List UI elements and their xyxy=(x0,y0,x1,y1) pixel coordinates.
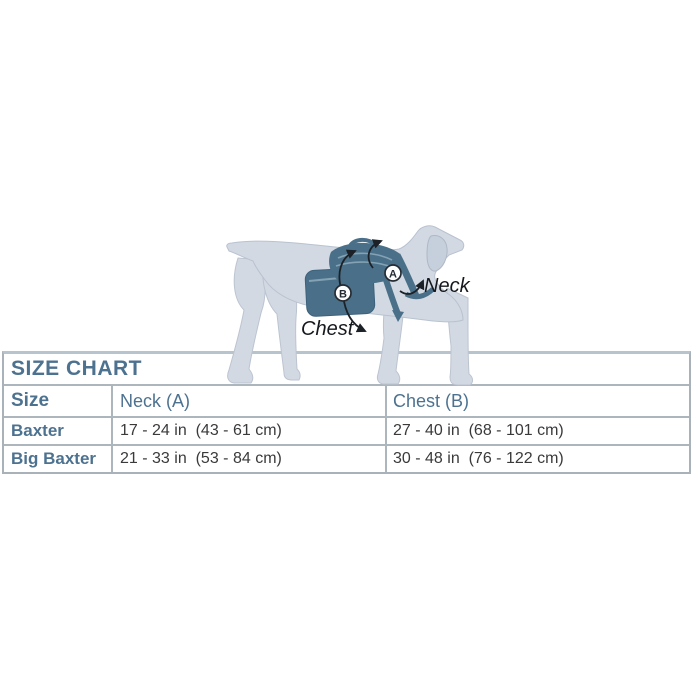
col-header-neck: Neck (A) xyxy=(120,391,190,412)
chest-label: Chest xyxy=(301,318,355,340)
cell-neck-range: 17 - 24 in (43 - 61 cm) xyxy=(120,422,282,440)
dog-measurement-diagram: A B Neck Chest xyxy=(215,216,505,392)
marker-b-badge: B xyxy=(335,285,351,301)
size-chart-page: A B Neck Chest SIZE CHART Size Neck (A) … xyxy=(0,0,700,700)
table-row-baxter: Baxter 17 - 24 in (43 - 61 cm) 27 - 40 i… xyxy=(4,416,689,444)
size-chart-title: SIZE CHART xyxy=(11,357,142,381)
col-header-chest: Chest (B) xyxy=(393,391,469,412)
cell-chest-range: 30 - 48 in (76 - 122 cm) xyxy=(393,450,564,468)
marker-a-badge: A xyxy=(385,265,401,281)
cell-neck-range: 21 - 33 in (53 - 84 cm) xyxy=(120,450,282,468)
neck-label: Neck xyxy=(424,275,471,297)
table-row-big-baxter: Big Baxter 21 - 33 in (53 - 84 cm) 30 - … xyxy=(4,444,689,472)
dog-ear xyxy=(427,236,447,272)
cell-size: Baxter xyxy=(11,421,64,441)
marker-a-letter: A xyxy=(389,269,397,281)
cell-chest-range: 27 - 40 in (68 - 101 cm) xyxy=(393,422,564,440)
cell-size: Big Baxter xyxy=(11,449,96,469)
marker-b-letter: B xyxy=(339,289,347,301)
col-header-size: Size xyxy=(11,390,49,412)
